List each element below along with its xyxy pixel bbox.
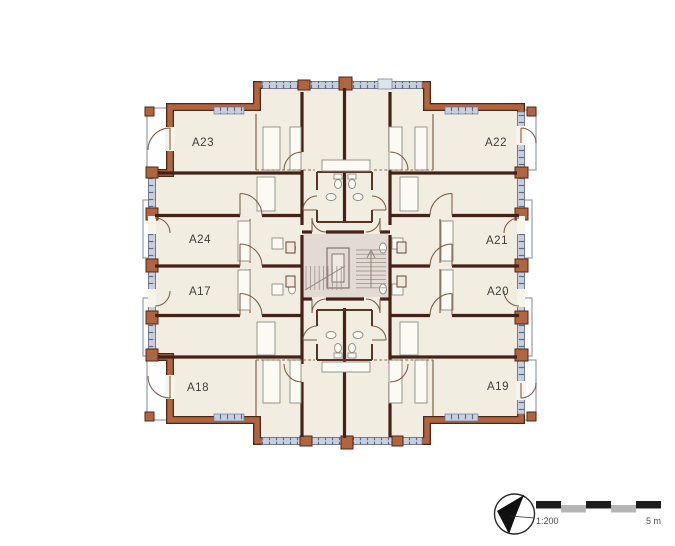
window-band bbox=[518, 324, 525, 349]
floor-plan-svg: A23 A22 A24 A21 A17 A20 A18 A19 1:200 5 … bbox=[0, 0, 675, 546]
apartment-label-a21: A21 bbox=[486, 235, 508, 247]
apartment-label-a20: A20 bbox=[487, 286, 509, 298]
apartment-label-a17: A17 bbox=[189, 286, 211, 298]
window-band bbox=[149, 324, 156, 349]
apartment-label-a23: A23 bbox=[192, 137, 214, 149]
window-band bbox=[445, 107, 478, 114]
window-band bbox=[352, 82, 378, 89]
window-band bbox=[392, 82, 422, 89]
scale-length-label: 5 m bbox=[646, 516, 661, 526]
window-band bbox=[353, 438, 392, 445]
window-band bbox=[149, 177, 156, 208]
floor-plan-page: A23 A22 A24 A21 A17 A20 A18 A19 1:200 5 … bbox=[0, 0, 675, 546]
scale-ratio-label: 1:200 bbox=[536, 516, 559, 526]
window-band bbox=[403, 438, 422, 445]
apartment-label-a22: A22 bbox=[485, 137, 507, 149]
apartment-label-a18: A18 bbox=[187, 382, 209, 394]
window-band bbox=[214, 414, 244, 421]
window-band bbox=[262, 82, 300, 89]
window-band bbox=[445, 414, 478, 421]
apartment-label-a19: A19 bbox=[487, 381, 509, 393]
window-band bbox=[312, 438, 342, 445]
window-band bbox=[214, 107, 244, 114]
window-band bbox=[518, 178, 525, 208]
window-band bbox=[262, 438, 300, 445]
apartment-label-a24: A24 bbox=[189, 234, 211, 246]
window-band bbox=[310, 82, 340, 89]
